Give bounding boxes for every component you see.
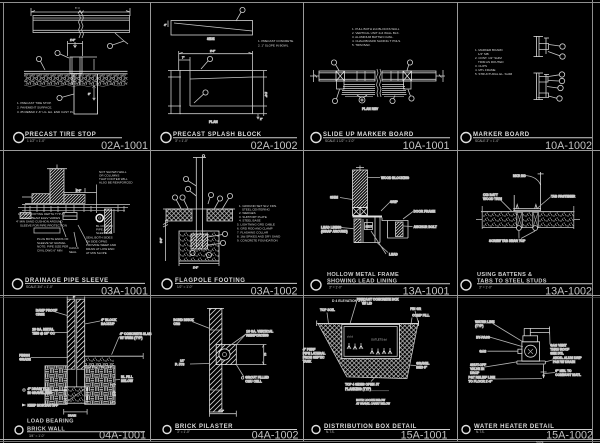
svg-text:N.T.S.: N.T.S. xyxy=(476,430,485,434)
svg-text:ANCHOR BOLT: ANCHOR BOLT xyxy=(414,225,437,229)
svg-text:3" = 1'-0": 3" = 1'-0" xyxy=(329,286,342,290)
svg-text:SCALE 3" = 1'-0": SCALE 3" = 1'-0" xyxy=(475,139,499,143)
svg-text:PLANKING (TYP): PLANKING (TYP) xyxy=(345,387,371,391)
svg-text:3. #5 REBAR 1'-6" LG. EA. END: 3. #5 REBAR 1'-6" LG. EA. END CAST IN. xyxy=(17,110,74,114)
svg-text:BELOW: BELOW xyxy=(121,379,133,383)
svg-text:SLEEVE FOR PIPE PROTECTION: SLEEVE FOR PIPE PROTECTION xyxy=(20,223,67,227)
svg-text:3" = 1'-0": 3" = 1'-0" xyxy=(479,286,492,290)
svg-text:04A-1001: 04A-1001 xyxy=(99,430,146,442)
svg-text:PLAN REV: PLAN REV xyxy=(362,107,379,111)
svg-text:2. 1" SLOPE IN BOWL: 2. 1" SLOPE IN BOWL xyxy=(258,44,289,48)
svg-text:TANK: TANK xyxy=(303,360,312,364)
svg-text:03A-1002: 03A-1002 xyxy=(251,286,298,298)
svg-text:15A-1001: 15A-1001 xyxy=(401,430,448,442)
svg-text:USING BATTENS &: USING BATTENS & xyxy=(477,272,532,278)
svg-text:7": 7" xyxy=(182,56,184,60)
svg-text:SEE DTL: SEE DTL xyxy=(550,352,564,356)
svg-text:MKR BD: MKR BD xyxy=(513,174,526,178)
svg-text:1'-8": 1'-8" xyxy=(264,92,268,97)
svg-text:3/4" = 1'-0": 3/4" = 1'-0" xyxy=(29,434,45,438)
svg-text:CIVIL DWG 6" MIN: CIVIL DWG 6" MIN xyxy=(37,248,62,252)
svg-text:1. PRECAST CONCRETE.: 1. PRECAST CONCRETE. xyxy=(258,39,294,43)
svg-text:SEAL: SEAL xyxy=(69,250,77,254)
svg-text:02A-1002: 02A-1002 xyxy=(251,140,298,152)
svg-text:PRECAST TIRE STOP: PRECAST TIRE STOP xyxy=(25,132,96,138)
svg-text:PAN W/ DRAIN: PAN W/ DRAIN xyxy=(553,360,576,364)
svg-text:GRADE: GRADE xyxy=(19,358,31,362)
svg-text:1 1/2" = 1'-0": 1 1/2" = 1'-0" xyxy=(27,139,45,143)
svg-text:15A-1002: 15A-1002 xyxy=(546,430,593,442)
svg-text:02A-1001: 02A-1001 xyxy=(101,140,148,152)
svg-text:TAB FASTENER: TAB FASTENER xyxy=(551,195,576,199)
svg-text:REINFORCING: REINFORCING xyxy=(246,334,269,338)
svg-text:SLIDE UP MARKER BOARD: SLIDE UP MARKER BOARD xyxy=(323,132,414,138)
svg-text:1'-6": 1'-6" xyxy=(193,266,198,270)
svg-text:10A-1002: 10A-1002 xyxy=(545,140,592,152)
svg-text:GAS: GAS xyxy=(479,350,486,354)
svg-text:BED 6": BED 6" xyxy=(416,366,427,370)
svg-text:5. TRIM BAR.: 5. TRIM BAR. xyxy=(352,43,371,47)
svg-text:13A-1002: 13A-1002 xyxy=(545,286,592,298)
svg-text:SCALE 3/4" = 1'-0": SCALE 3/4" = 1'-0" xyxy=(26,285,53,289)
svg-text:P. JTS: P. JTS xyxy=(175,363,184,367)
svg-text:SIDE: SIDE xyxy=(207,37,214,41)
svg-text:SHIM: SHIM xyxy=(330,196,338,200)
svg-text:3'-0": 3'-0" xyxy=(159,238,163,243)
svg-text:LOAD BEARING: LOAD BEARING xyxy=(27,419,74,425)
svg-text:BY-PASS: BY-PASS xyxy=(476,336,490,340)
svg-text:4": 4" xyxy=(164,23,166,27)
svg-text:CRS: CRS xyxy=(173,322,180,326)
svg-text:1'-0": 1'-0" xyxy=(70,38,75,42)
svg-text:LEAD: LEAD xyxy=(389,253,398,257)
svg-text:1'-0": 1'-0" xyxy=(219,409,224,413)
svg-text:NOTE: LOCATE BELOW: NOTE: LOCATE BELOW xyxy=(356,398,385,402)
svg-text:d d d: d d d xyxy=(347,335,353,339)
svg-text:DRAIN: DRAIN xyxy=(68,413,76,417)
svg-text:8": 8" xyxy=(88,92,90,96)
svg-text:TOP SOIL: TOP SOIL xyxy=(320,308,335,312)
svg-text:04A-1002: 04A-1002 xyxy=(252,430,299,442)
svg-text:WOOD BLOCKING: WOOD BLOCKING xyxy=(381,176,410,180)
svg-text:2'-6": 2'-6" xyxy=(76,189,81,193)
svg-text:W/ LID: W/ LID xyxy=(362,302,373,306)
svg-text:(TYP): (TYP) xyxy=(475,324,483,328)
svg-text:BACKUP: BACKUP xyxy=(101,322,116,326)
svg-text:OUTLETS dd: OUTLETS dd xyxy=(371,338,387,342)
svg-text:N.T.S.: N.T.S. xyxy=(326,430,335,434)
svg-text:PLAN: PLAN xyxy=(209,120,218,124)
svg-text:SCALE 1 1/2" = 1'-0": SCALE 1 1/2" = 1'-0" xyxy=(325,139,355,143)
svg-text:3" = 1'-0": 3" = 1'-0" xyxy=(177,430,190,434)
svg-text:1. PRECAST TIRE STOP.: 1. PRECAST TIRE STOP. xyxy=(17,101,52,105)
svg-text:8"-0: 8"-0 xyxy=(75,6,80,10)
svg-text:2. PAVEMENT SURFACE.: 2. PAVEMENT SURFACE. xyxy=(17,106,52,110)
svg-text:FIN GR: FIN GR xyxy=(410,307,421,311)
svg-text:1/2": 1/2" xyxy=(180,359,185,363)
svg-text:W/ WWM (TYP): W/ WWM (TYP) xyxy=(120,336,143,340)
svg-text:SLEEVE AS: SLEEVE AS xyxy=(96,231,112,235)
svg-text:7B: 7B xyxy=(263,353,267,356)
svg-text:COMP FILL: COMP FILL xyxy=(412,313,429,317)
svg-text:AT MIN SLOPE: AT MIN SLOPE xyxy=(86,251,107,255)
svg-text:MARKER BOARD: MARKER BOARD xyxy=(473,132,530,138)
svg-text:03A-1001: 03A-1001 xyxy=(101,286,148,298)
svg-text:KEEP MORTAR OFF: KEEP MORTAR OFF xyxy=(28,404,59,408)
svg-text:PRECAST SPLASH BLOCK: PRECAST SPLASH BLOCK xyxy=(173,132,262,138)
svg-text:TO FLOOR 1'-6": TO FLOOR 1'-6" xyxy=(468,380,493,384)
svg-text:GRIP: GRIP xyxy=(390,200,399,204)
svg-text:SCREW TAB NEAR TOP: SCREW TAB NEAR TOP xyxy=(489,239,526,243)
svg-text:HOLLOW METAL FRAME: HOLLOW METAL FRAME xyxy=(327,272,399,278)
svg-text:13A-1001: 13A-1001 xyxy=(403,286,450,298)
svg-text:CMU CELL: CMU CELL xyxy=(245,380,262,384)
svg-text:10A-1001: 10A-1001 xyxy=(403,140,450,152)
svg-text:(WRAP AROUND): (WRAP AROUND) xyxy=(321,230,348,234)
svg-text:COMBUST MATL: COMBUST MATL xyxy=(555,373,581,377)
svg-text:9. CONCRETE FOUNDATION: 9. CONCRETE FOUNDATION xyxy=(237,238,278,242)
svg-text:IN GRAVEL BED: IN GRAVEL BED xyxy=(28,391,53,395)
svg-text:ALSO BE REINFORCED: ALSO BE REINFORCED xyxy=(99,181,133,185)
svg-text:5. STRUCTURAL EL. SHIM: 5. STRUCTURAL EL. SHIM xyxy=(475,72,513,76)
svg-text:1'-0": 1'-0" xyxy=(113,391,117,396)
svg-text:1/2" = 1'-0": 1/2" = 1'-0" xyxy=(177,285,193,289)
svg-text:AT GRAVEL CARRY BELOW: AT GRAVEL CARRY BELOW xyxy=(356,402,390,406)
svg-text:SECT: SECT xyxy=(366,225,373,229)
svg-text:CRSE: CRSE xyxy=(36,313,45,317)
svg-text:DROP: DROP xyxy=(470,371,480,375)
svg-text:3" = 1'-0": 3" = 1'-0" xyxy=(175,139,188,143)
svg-text:2'-6": 2'-6" xyxy=(210,49,215,53)
svg-text:2": 2" xyxy=(260,117,262,121)
svg-text:DOOR FRAME: DOOR FRAME xyxy=(414,210,436,214)
